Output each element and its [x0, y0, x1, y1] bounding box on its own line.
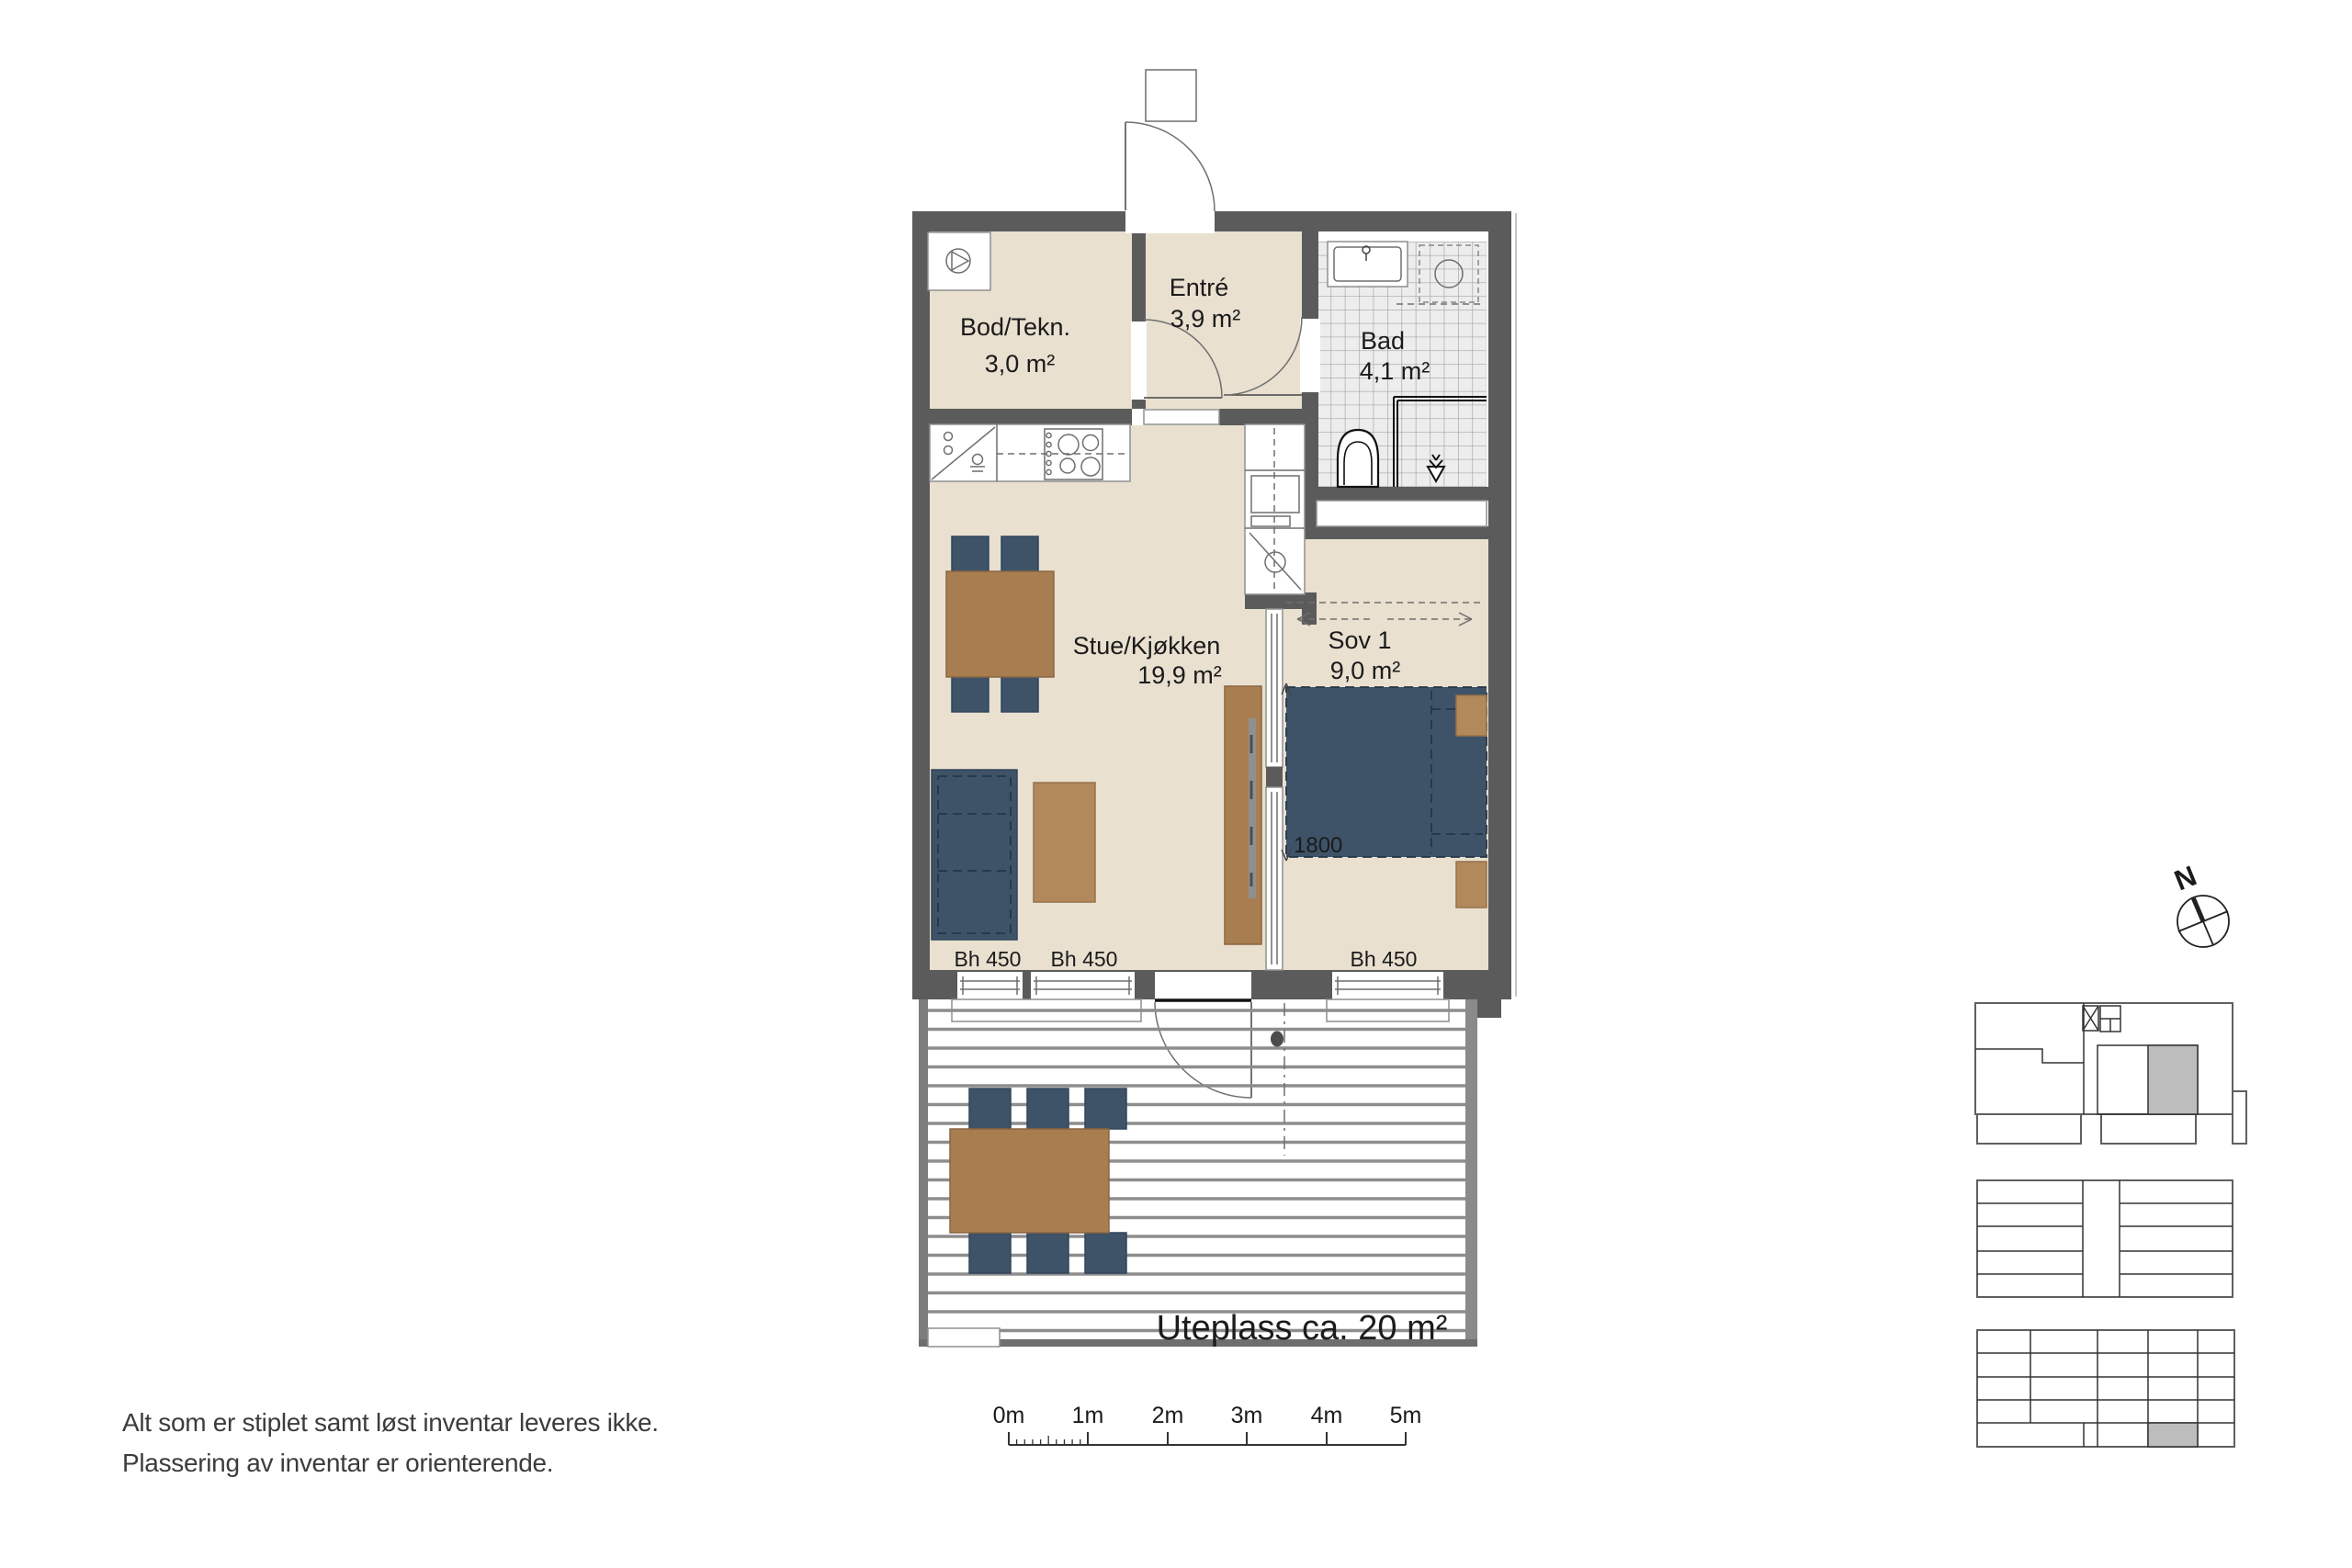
bod-area-label: 3,0 m²	[985, 350, 1056, 378]
sofa	[932, 770, 1017, 940]
dining-chair	[1001, 675, 1038, 712]
entre-name-label: Entré	[1170, 274, 1229, 301]
bod-door-opening	[1131, 321, 1147, 400]
outdoor-chair	[969, 1233, 1011, 1273]
scale-tick-label: 3m	[1231, 1403, 1263, 1428]
outdoor-chair	[1027, 1089, 1069, 1129]
scale-bar: 0m 1m 2m 3m 4m 5m	[993, 1403, 1422, 1445]
outdoor-chair	[969, 1089, 1011, 1129]
disclaimer-line-2: Plassering av inventar er orienterende.	[122, 1449, 553, 1477]
scale-tick-label: 5m	[1390, 1403, 1422, 1428]
stue-area-label: 19,9 m²	[1137, 661, 1222, 689]
entrance-canopy	[1146, 70, 1196, 121]
dining-chair	[952, 536, 989, 573]
entrance-opening	[1125, 209, 1215, 233]
bedroom-niche	[1317, 501, 1487, 526]
scale-tick-label: 4m	[1311, 1403, 1343, 1428]
scale-tick-label: 2m	[1152, 1403, 1184, 1428]
window-3	[1332, 972, 1443, 999]
balcony-door	[1155, 972, 1251, 1098]
floor-plan-page: Bod/Tekn. 3,0 m² Entré 3,9 m² Bad 4,1 m²…	[0, 0, 2352, 1568]
terrace-border-left	[919, 999, 928, 1347]
bad-name-label: Bad	[1361, 327, 1405, 355]
key-plan-facade-1	[1977, 1180, 2233, 1297]
bad-area-label: 4,1 m²	[1360, 357, 1430, 385]
entre-area-label: 3,9 m²	[1170, 305, 1241, 333]
window-sill-height-label: Bh 450	[1351, 947, 1418, 971]
entre-living-opening	[1144, 410, 1219, 424]
vanity-sink	[1328, 242, 1408, 287]
stue-name-label: Stue/Kjøkken	[1073, 632, 1221, 660]
scale-minor-ticks	[1017, 1436, 1080, 1445]
outdoor-table	[950, 1129, 1109, 1233]
dining-chair	[952, 675, 989, 712]
bed-width-dim-label: 1800	[1294, 833, 1342, 858]
compass-north-pointer-icon	[2193, 897, 2203, 921]
key-plan-situation	[1975, 1003, 2246, 1144]
dining-table	[946, 571, 1054, 677]
nightstand	[1456, 695, 1487, 736]
balcony-door-swing	[1155, 1002, 1251, 1098]
bod-tekn-room	[928, 232, 990, 290]
kitchen-counter	[930, 424, 1130, 481]
sov-name-label: Sov 1	[1328, 626, 1391, 654]
disclaimer: Alt som er stiplet samt løst inventar le…	[122, 1408, 659, 1477]
terrace-step	[928, 1328, 1000, 1347]
window-sill-height-label: Bh 450	[955, 947, 1022, 971]
north-label: N	[2170, 859, 2201, 897]
scale-tick-label: 0m	[993, 1403, 1025, 1428]
disclaimer-line-1: Alt som er stiplet samt løst inventar le…	[122, 1408, 659, 1437]
unit-location-highlight	[2148, 1045, 2198, 1114]
floor-plan-drawing: Bod/Tekn. 3,0 m² Entré 3,9 m² Bad 4,1 m²…	[0, 0, 2352, 1568]
window-2	[1031, 972, 1135, 999]
dining-chair	[1001, 536, 1038, 573]
sov-area-label: 9,0 m²	[1330, 657, 1401, 684]
terrace-border-right	[1465, 999, 1477, 1347]
outdoor-chair	[1085, 1089, 1126, 1129]
outdoor-chair	[1085, 1233, 1126, 1273]
sliding-glass-partition	[1266, 609, 1283, 970]
ventilation-unit	[928, 232, 990, 290]
key-plan-facade-2	[1977, 1330, 2234, 1447]
outdoor-chair	[1027, 1233, 1069, 1273]
coffee-table	[1034, 783, 1095, 902]
window-sill-height-label: Bh 450	[1051, 947, 1118, 971]
terrace	[919, 999, 1477, 1347]
unit-location-highlight	[2148, 1423, 2198, 1447]
terrace-drain-icon	[1271, 1032, 1283, 1047]
uteplass-label: Uteplass ca. 20 m²	[1157, 1309, 1448, 1348]
scale-tick-label: 1m	[1072, 1403, 1104, 1428]
north-arrow: N	[2170, 859, 2229, 947]
bathroom-door-opening	[1300, 319, 1320, 392]
nightstand	[1456, 862, 1487, 908]
entrance-door-swing	[1125, 122, 1215, 211]
bod-name-label: Bod/Tekn.	[960, 313, 1070, 341]
window-1	[957, 972, 1023, 999]
